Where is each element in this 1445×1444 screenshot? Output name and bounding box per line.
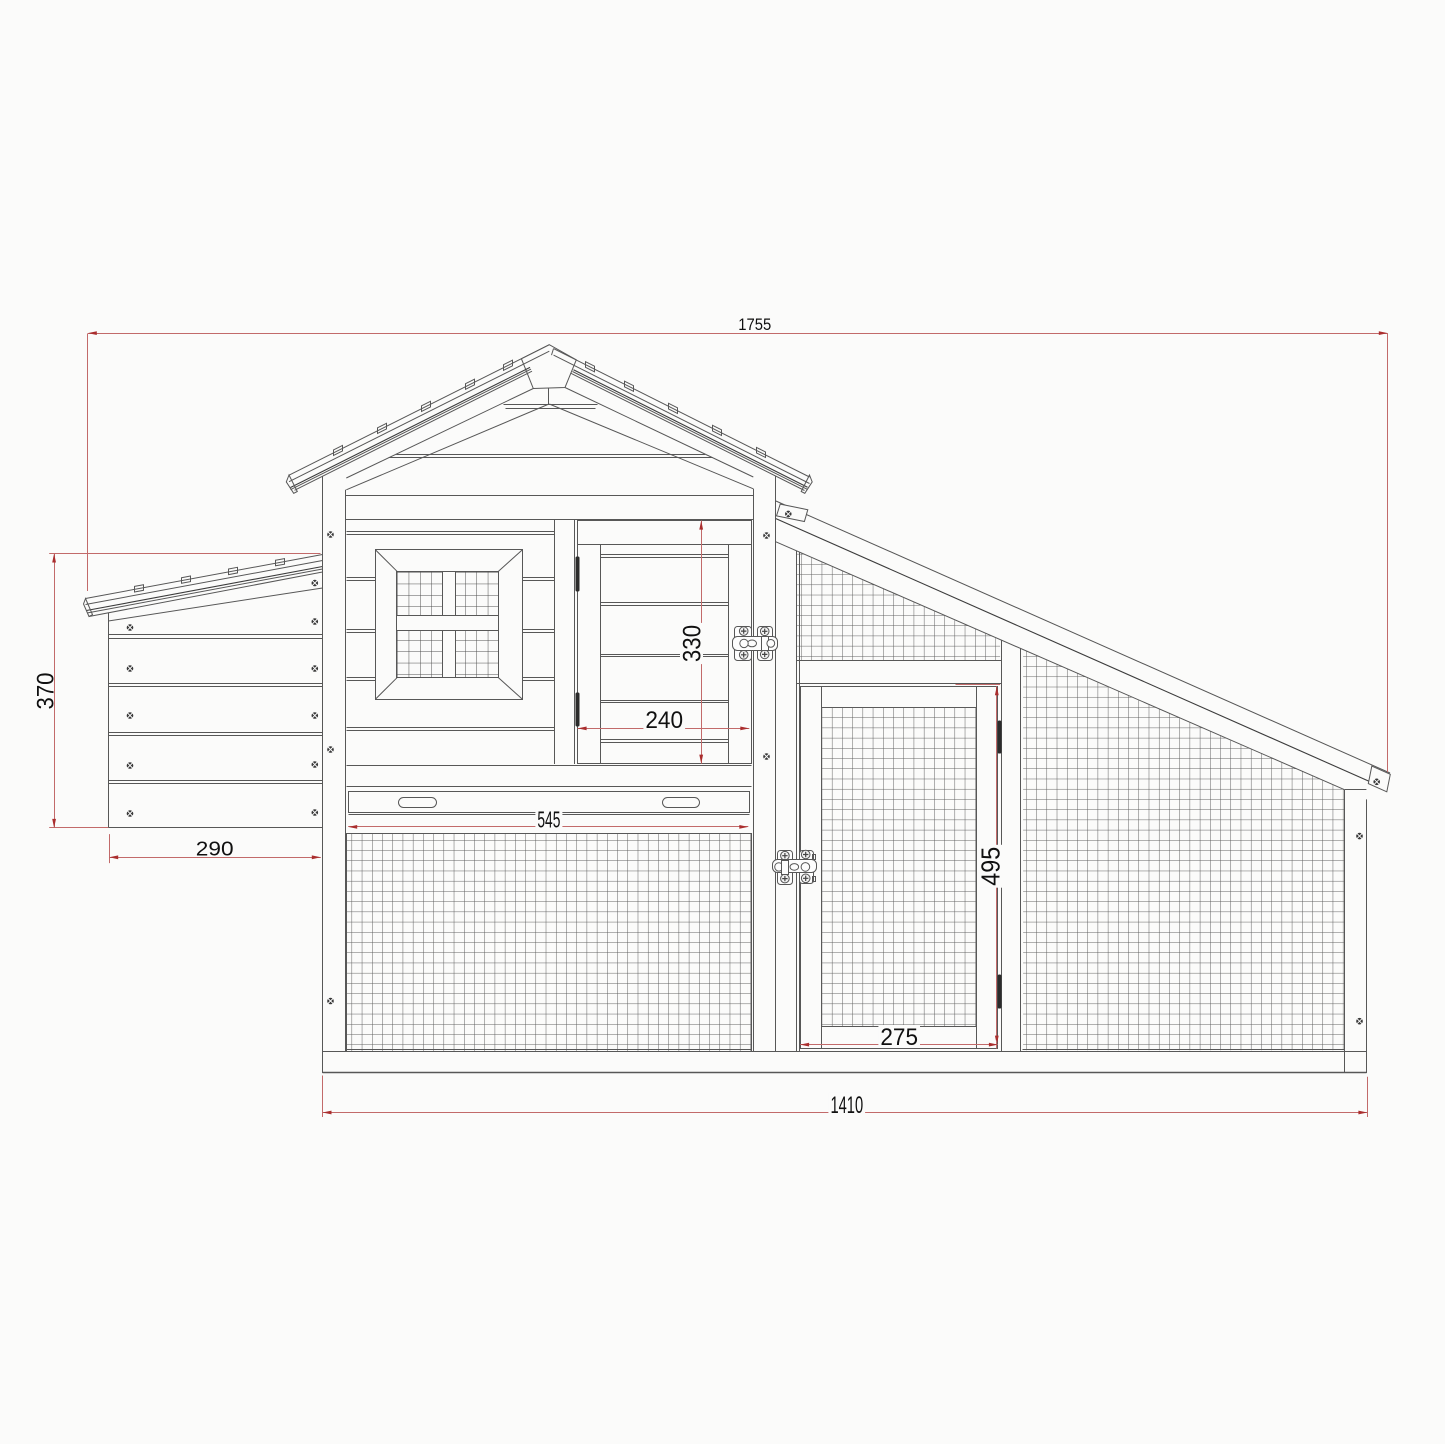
svg-text:240: 240 [645, 707, 683, 734]
svg-text:545: 545 [537, 807, 560, 833]
svg-text:495: 495 [976, 847, 1006, 886]
svg-text:275: 275 [880, 1024, 918, 1051]
svg-text:290: 290 [196, 837, 234, 860]
svg-text:330: 330 [679, 625, 707, 662]
svg-text:370: 370 [33, 673, 60, 710]
svg-text:1755: 1755 [738, 315, 771, 334]
svg-text:1410: 1410 [830, 1092, 863, 1119]
